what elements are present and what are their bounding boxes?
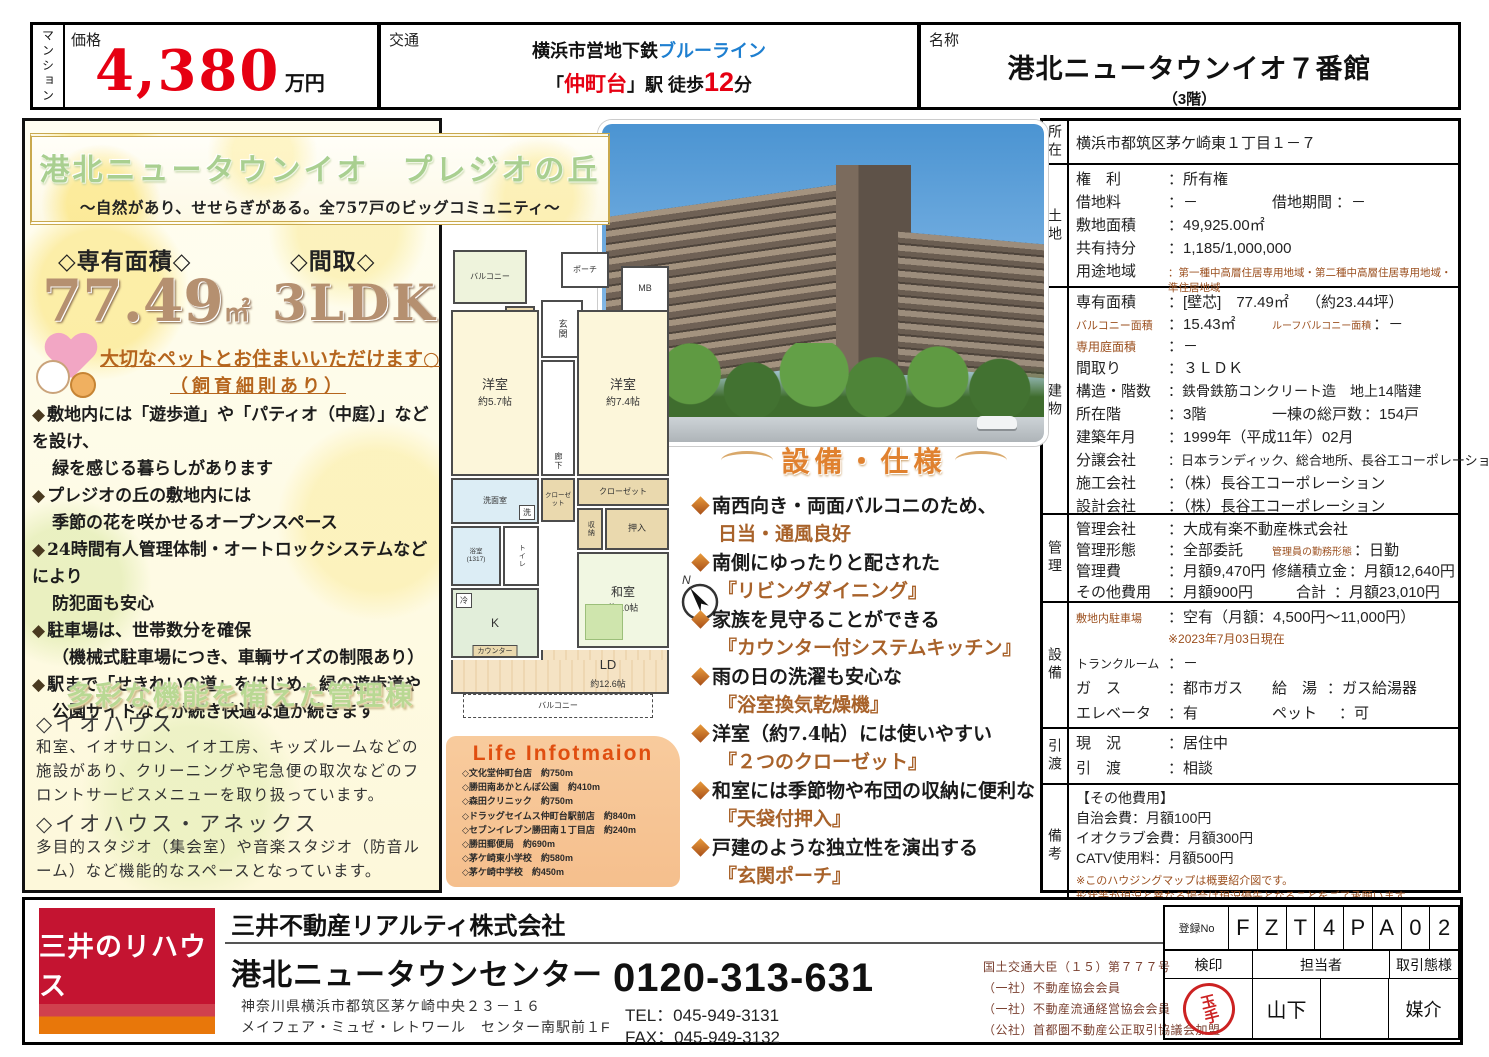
plan-washroom: 洗面室 洗 [451,478,539,524]
torihiki-label: 取引態様 [1390,951,1458,978]
plan-counter: カウンター [473,645,518,657]
bullet-4-l2: （機械式駐車場につき、車輌サイズの制限あり） [32,645,436,672]
community-subtitle: 〜自然があり、せせらぎがある。全757戸のビッグコミュニティ〜 [32,196,608,218]
name-box: 名称 港北ニュータウンイオ７番館 （3階） [918,22,1461,110]
access-line-name: ブルーライン [658,41,766,61]
price-unit: 万円 [285,73,325,95]
plan-ld-label: LD約12.6帖 [563,656,653,692]
reg-no-label: 登録No [1165,907,1229,949]
cat-illustration [70,372,96,398]
svg-text:N: N [682,573,691,587]
equipment-heading: 設備・仕様 [781,440,946,480]
license-line1: 国土交通大臣（１５）第７７７号 [983,958,1171,975]
price-value-wrap: 4,380 万円 [95,43,325,99]
location-value: 横浜市都筑区茅ケ崎東１丁目１－７ [1076,132,1316,153]
access-box: 交通 横浜市営地下鉄ブルーライン 「仲町台」駅 徒歩12分 [378,22,920,110]
title-banner: 港北ニュータウンイオ プレジオの丘 〜自然があり、せせらぎがある。全757戸のビ… [30,133,610,225]
plan-west-room-2: 洋室約7.4帖 [577,310,669,476]
equip-item-3: 家族を見守ることができる 『カウンター付システムキッチン』 [694,606,1046,662]
reg-digit-3: T [1287,907,1316,949]
plan-balcony-bottom: バルコニー [463,694,653,718]
phone-number: 0120-313-631 [613,956,874,1001]
community-title: 港北ニュータウンイオ プレジオの丘 [32,145,608,189]
kenin-label: 検印 [1165,951,1253,978]
access-quote-open: 「 [546,75,564,95]
section-label-facilities: 設備 [1043,603,1069,727]
plan-toilet: トイレ [503,526,539,586]
mitsui-rehouse-logo: 三井のリハウス [39,908,215,1034]
plan-balcony-top: バルコニー [453,250,527,304]
iohouse-text: 和室、イオサロン、イオ工房、キッズルームなどの施設があり、クリーニングや宅急便の… [36,736,432,808]
office-address1: 神奈川県横浜市都筑区茅ケ崎中央２３－１６ [241,996,541,1016]
life-info-box: Life Infotmaion ◇文化堂仲町台店 約750m ◇勝田南あかとんぼ… [446,736,680,887]
section-label-handover: 引渡 [1043,729,1069,783]
reg-digit-6: A [1373,907,1402,949]
iohouse-title: ◇イオハウス [36,708,175,738]
plan-west-room-1: 洋室約5.7帖 [451,310,539,476]
reg-digit-2: Z [1258,907,1287,949]
pet-line2: （飼育細則あり） [170,372,346,398]
annex-title: ◇イオハウス・アネックス [36,808,319,838]
section-location: 所在 横浜市都筑区茅ケ崎東１丁目１－７ [1043,121,1458,165]
access-minutes: 12 [704,67,734,97]
footer: 三井のリハウス 三井不動産リアルティ株式会社 港北ニュータウンセンター 神奈川県… [22,897,1463,1045]
floor-plan: バルコニー ポーチ MB 玄関 下足入 洋室約5.7帖 廊下 洋室約7.4帖 ク… [443,248,677,723]
life-item-2: ◇勝田南あかとんぼ公園 約410m [446,780,680,794]
reg-digit-7: 0 [1402,907,1431,949]
life-item-7: ◇茅ケ崎東小学校 約580m [446,851,680,865]
reg-digit-4: 4 [1315,907,1344,949]
bullet-2-l1: ◆プレジオの丘の敷地内には [32,483,436,510]
life-item-4: ◇ドラッグセイムス仲町台駅前店 約840m [446,809,680,823]
life-item-5: ◇セブンイレブン勝田南１丁目店 約240m [446,823,680,837]
plan-kitchen: 冷 K カウンター [451,588,539,658]
license-line3: （一社）不動産流通経営協会会員 [983,1000,1171,1017]
access-rail: 横浜市営地下鉄 [532,41,658,61]
plan-oshiire: 押入 [605,508,669,550]
tantosha-label: 担当者 [1253,951,1390,978]
office-name: 港北ニュータウンセンター [231,950,603,994]
photo-car [977,416,1017,429]
bullet-3-l1: ◆24時間有人管理体制・オートロックシステムなどにより [32,537,436,591]
area-value-wrap: 77.49㎡ [42,272,250,330]
section-building: 建物 専有面積：[壁芯] 77.49㎡ （約23.44坪） バルコニー面積：15… [1043,288,1458,515]
section-label-management: 管理 [1043,515,1069,601]
life-item-6: ◇勝田郵便局 約690m [446,837,680,851]
bullet-4-l1: ◆駐車場は、世帯数分を確保 [32,618,436,645]
access-text: 横浜市営地下鉄ブルーライン 「仲町台」駅 徒歩12分 [381,37,917,98]
logo-text: 三井のリハウス [39,925,215,1003]
building-name-wrap: 港北ニュータウンイオ７番館 （3階） [921,47,1458,109]
reg-digit-5: P [1344,907,1373,949]
bullet-1-l2: 緑を感じる暮らしがあります [32,456,436,483]
plan-storage: 収納 [577,508,603,550]
section-management: 管理 管理会社：大成有楽不動産株式会社 管理形態：全部委託 管理員の勤務形態：日… [1043,515,1458,603]
flourish-left [721,451,773,470]
annex-text: 多目的スタジオ（集会室）や音楽スタジオ（防音ルーム）など機能的なスペースとなって… [36,836,436,884]
equip-item-1: 南西向き・両面バルコニのため、 日当・通風良好 [694,492,1046,548]
life-item-1: ◇文化堂仲町台店 約750m [446,766,680,780]
fax-number: FAX：045-949-3132 [625,1023,780,1048]
stamp-cell: 玉手 [1165,979,1253,1038]
reg-digit-1: F [1229,907,1258,949]
section-land: 土地 権 利：所有権 借地料：－ 借地期間：－ 敷地面積：49,925.00㎡ … [1043,165,1458,288]
flyer-page: マンション 価格 4,380 万円 交通 横浜市営地下鉄ブルーライン 「仲町台」… [0,0,1489,1057]
price-box: マンション 価格 4,380 万円 [30,22,380,110]
plan-washer: 洗 [519,505,535,520]
company-rule [225,942,1165,944]
hanko-stamp: 玉手 [1177,977,1240,1040]
equipment-heading-wrap: 設備・仕様 [688,440,1040,480]
life-item-3: ◇森田クリニック 約750m [446,794,680,808]
life-info-title: Life Infotmaion [446,742,680,766]
access-station: 仲町台 [564,73,627,96]
access-station-suffix: 」駅 徒歩 [627,75,704,95]
toilet-label: トイレ [517,544,526,568]
pet-line1: 大切なペットとお住まいいただけます○ [100,344,440,371]
equip-item-6: 和室には季節物や布団の収納に便利な 『天袋付押入』 [694,777,1046,833]
staff-name-cell: 山下 [1253,979,1321,1038]
staff-empty-cell [1321,979,1389,1038]
equip-item-4: 雨の日の洗濯も安心な 『浴室換気乾燥機』 [694,663,1046,719]
reg-digit-8: 2 [1430,907,1458,949]
details-table: 所在 横浜市都筑区茅ケ崎東１丁目１－７ 土地 権 利：所有権 借地料：－ 借地期… [1040,118,1461,893]
bullet-2-l2: 季節の花を咲かせるオープンスペース [32,510,436,537]
building-floor: （3階） [921,88,1458,109]
price-value: 4,380 [95,38,280,104]
registration-grid: 登録No F Z T 4 P A 0 2 検印 担当者 取引態様 玉手 山下 [1163,905,1460,1040]
trade-type-cell: 媒介 [1389,979,1458,1038]
layout-value: 3LDK [272,278,437,328]
access-minutes-unit: 分 [734,75,752,95]
property-type-tab: マンション [33,25,65,107]
section-remarks: 備考 【その他費用】 自治会費：月額100円 イオクラブ会費：月額300円 CA… [1043,785,1458,906]
life-item-8: ◇茅ケ崎中学校 約450m [446,865,680,879]
equip-item-5: 洋室（約7.4帖）には使いやすい 『２つのクローゼット』 [694,720,1046,776]
plan-washitsu: 和室約6.0帖 [577,552,669,648]
plan-tatami [585,604,623,640]
plan-bath: 浴室(1317) [451,526,501,586]
bullet-1-l1: ◆敷地内には「遊歩道」や「パティオ（中庭）」などを設け、 [32,402,436,456]
license-line2: （一社）不動産協会会員 [983,979,1121,996]
section-label-remarks: 備考 [1043,785,1069,906]
plan-mb: MB [621,266,669,312]
equip-item-2: 南側にゆったりと配された 『リビングダイニング』 [694,549,1046,605]
office-address2: メイフェア・ミュゼ・レトワール センター南駅前１F [241,1017,611,1037]
equip-item-7: 戸建のような独立性を演出する 『玄関ポーチ』 [694,834,1046,890]
bullet-3-l2: 防犯面も安心 [32,591,436,618]
plan-closet-b: クローゼット [577,478,669,506]
dog-illustration [36,360,70,394]
area-unit: ㎡ [224,298,250,328]
plan-fridge: 冷 [456,593,472,608]
plan-hallway: 廊下 [541,360,575,476]
layout-label: ◇間取◇ [290,242,375,276]
area-value: 77.49 [42,267,224,335]
section-facilities: 設備 敷地内駐車場：空有（月額：4,500円〜11,000円） ※2023年7月… [1043,603,1458,729]
plan-porch: ポーチ [561,252,609,288]
plan-closet-a: クローゼット [541,478,575,522]
section-handover: 引渡 現 況：居住中 引 渡：相談 [1043,729,1458,785]
flourish-right [955,451,1007,470]
building-name: 港北ニュータウンイオ７番館 [921,47,1458,86]
company-name: 三井不動産リアルティ株式会社 [231,906,565,941]
